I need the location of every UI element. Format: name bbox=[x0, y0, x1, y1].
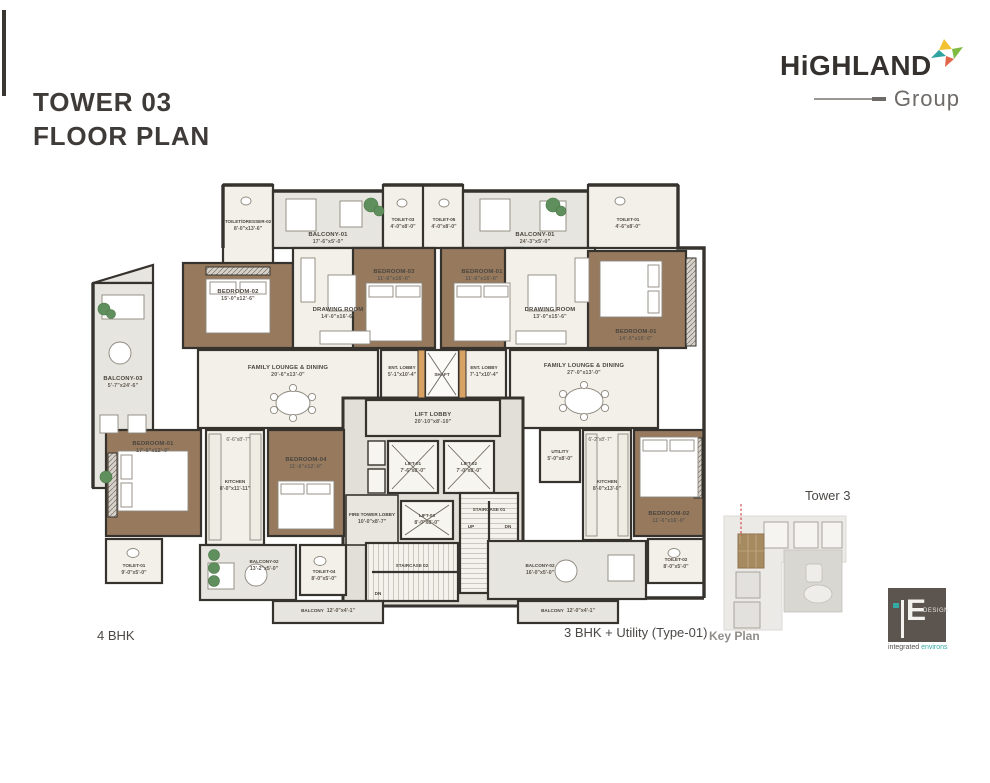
svg-text:DN: DN bbox=[375, 591, 382, 596]
brand-subtitle: Group bbox=[894, 86, 960, 112]
svg-text:BALCONY-0124'-3"x5'-0": BALCONY-0124'-3"x5'-0" bbox=[515, 232, 555, 245]
brand-logo: HiGHLAND Group bbox=[780, 50, 960, 112]
floor-plan-drawing: TOILET/DRESSER-028'-0"x13'-6" BALCONY-01… bbox=[88, 183, 710, 630]
svg-text:BEDROOM-0117'-6"x12'-0": BEDROOM-0117'-6"x12'-0" bbox=[132, 441, 174, 454]
svg-text:TOILET-034'-0"x8'-0": TOILET-034'-0"x8'-0" bbox=[390, 217, 416, 230]
bed bbox=[206, 279, 270, 333]
svg-text:TOILET-019'-0"x5'-0": TOILET-019'-0"x5'-0" bbox=[121, 563, 147, 576]
svg-text:BALCONY-035'-7"x24'-6": BALCONY-035'-7"x24'-6" bbox=[103, 376, 143, 389]
floor-plan: TOILET/DRESSER-028'-0"x13'-6" BALCONY-01… bbox=[88, 183, 710, 630]
svg-text:TOILET-028'-0"x5'-0": TOILET-028'-0"x5'-0" bbox=[663, 557, 689, 570]
svg-text:BALCONY-0117'-6"x5'-0": BALCONY-0117'-6"x5'-0" bbox=[308, 232, 348, 245]
design-firm-logo: E DESIGN integrated environs bbox=[888, 588, 950, 651]
brand-divider-line bbox=[814, 98, 884, 100]
design-logo-teal-square bbox=[893, 603, 899, 608]
left-accent-bar bbox=[2, 10, 6, 96]
design-logo-tagline: integrated environs bbox=[888, 644, 950, 651]
bed bbox=[118, 451, 188, 511]
brand-name: HiGHLAND bbox=[780, 50, 932, 81]
svg-text:BEDROOM-0111'-6"x16'-0": BEDROOM-0111'-6"x16'-0" bbox=[461, 269, 503, 282]
svg-text:BEDROOM-0211'-6"x16'-0": BEDROOM-0211'-6"x16'-0" bbox=[648, 511, 690, 524]
svg-text:6'-2"x8'-7": 6'-2"x8'-7" bbox=[588, 437, 611, 443]
svg-text:BEDROOM-0114'-0"x16'-0": BEDROOM-0114'-0"x16'-0" bbox=[615, 329, 657, 342]
unit-type-left: 4 BHK bbox=[97, 628, 135, 643]
svg-text:UP: UP bbox=[468, 524, 474, 529]
bed bbox=[366, 283, 422, 341]
svg-text:6'-6"x8'-7": 6'-6"x8'-7" bbox=[226, 437, 249, 443]
unit-type-right: 3 BHK + Utility (Type-01) bbox=[564, 625, 707, 640]
svg-text:BEDROOM-0411'-6"x12'-0": BEDROOM-0411'-6"x12'-0" bbox=[285, 457, 327, 470]
svg-text:BALCONY-0213'-2"x5'-0": BALCONY-0213'-2"x5'-0" bbox=[249, 559, 279, 572]
key-plan-drawing bbox=[706, 502, 866, 642]
svg-text:ENT. LOBBY5'-1"x10'-4": ENT. LOBBY5'-1"x10'-4" bbox=[388, 365, 417, 378]
bed bbox=[278, 481, 334, 529]
svg-text:BALCONY-0216'-0"x5'-0": BALCONY-0216'-0"x5'-0" bbox=[525, 563, 555, 576]
key-plan-tower-label: Tower 3 bbox=[805, 488, 851, 503]
svg-text:TOILET-054'-0"x8'-0": TOILET-054'-0"x8'-0" bbox=[431, 217, 457, 230]
page-title-line2: FLOOR PLAN bbox=[33, 120, 210, 154]
svg-text:STAIRCASE 01: STAIRCASE 01 bbox=[473, 507, 506, 512]
design-logo-stem bbox=[901, 600, 904, 638]
svg-text:LIFT LOBBY20'-10"x8'-10": LIFT LOBBY20'-10"x8'-10" bbox=[415, 412, 452, 425]
svg-text:STAIRCASE 02: STAIRCASE 02 bbox=[396, 563, 429, 568]
page-title-line1: TOWER 03 bbox=[33, 86, 210, 120]
bed bbox=[454, 283, 510, 341]
key-plan-caption: Key Plan bbox=[709, 629, 760, 643]
svg-text:DN: DN bbox=[505, 524, 512, 529]
svg-text:BEDROOM-0311'-6"x16'-0": BEDROOM-0311'-6"x16'-0" bbox=[373, 269, 415, 282]
svg-text:ENT. LOBBY7'-1"x10'-4": ENT. LOBBY7'-1"x10'-4" bbox=[470, 365, 499, 378]
svg-text:TOILET-048'-0"x5'-0": TOILET-048'-0"x5'-0" bbox=[311, 569, 337, 582]
svg-text:SHAFT: SHAFT bbox=[434, 372, 450, 377]
bed bbox=[600, 261, 662, 317]
design-logo-name: DESIGN bbox=[923, 608, 949, 614]
pinwheel-icon bbox=[930, 38, 964, 70]
page-title: TOWER 03 FLOOR PLAN bbox=[33, 86, 210, 154]
svg-text:TOILET-014'-6"x8'-0": TOILET-014'-6"x8'-0" bbox=[615, 217, 641, 230]
bed bbox=[640, 437, 698, 497]
design-logo-box: E DESIGN bbox=[888, 588, 946, 642]
key-plan: Tower 3 Key Plan bbox=[706, 486, 866, 648]
svg-text:BEDROOM-0215'-0"x12'-6": BEDROOM-0215'-0"x12'-6" bbox=[217, 289, 259, 302]
